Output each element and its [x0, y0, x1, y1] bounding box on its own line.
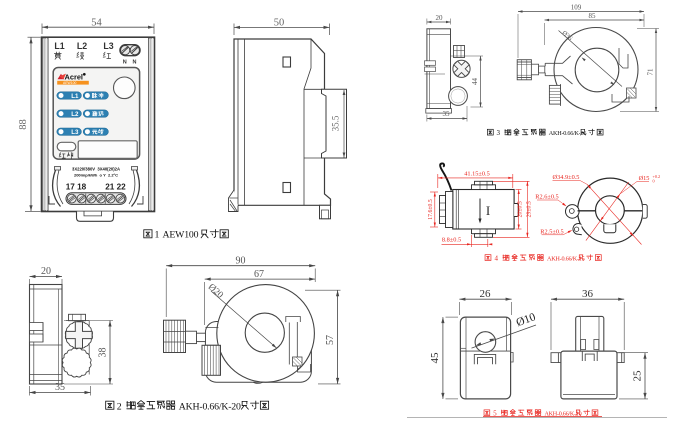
svg-text:50: 50 [274, 18, 285, 29]
svg-text:54: 54 [91, 18, 102, 29]
svg-text:36: 36 [582, 288, 594, 300]
svg-text:45: 45 [429, 352, 441, 364]
svg-text:AEW100: AEW100 [63, 81, 76, 85]
svg-text:25: 25 [632, 370, 644, 382]
svg-text:0: 0 [653, 179, 655, 184]
svg-text:17 18: 17 18 [66, 183, 87, 192]
svg-text:57: 57 [325, 335, 336, 345]
svg-text:90: 90 [236, 256, 246, 267]
svg-text:I: I [486, 203, 490, 218]
svg-text:4: 4 [494, 255, 498, 263]
svg-text:35: 35 [55, 382, 65, 393]
svg-text:88: 88 [18, 119, 29, 130]
svg-text:L2: L2 [71, 111, 79, 118]
svg-text:5: 5 [493, 411, 497, 418]
svg-text:R2.5±0.5: R2.5±0.5 [540, 228, 563, 235]
svg-text:85: 85 [589, 12, 597, 20]
svg-text:38: 38 [98, 348, 109, 358]
svg-text:8.8±0.5: 8.8±0.5 [442, 236, 461, 243]
svg-text:2: 2 [117, 402, 122, 413]
svg-text:71: 71 [647, 68, 655, 76]
svg-text:200imp/kWh o Y 2.2°C: 200imp/kWh o Y 2.2°C [74, 172, 118, 177]
svg-text:20: 20 [41, 266, 51, 277]
svg-text:L3: L3 [103, 41, 113, 51]
svg-text:R2.6±0.5: R2.6±0.5 [535, 194, 558, 201]
svg-text:N: N [123, 60, 127, 66]
svg-text:3X220/380V 3X40(20)2A: 3X220/380V 3X40(20)2A [72, 167, 120, 172]
svg-text:21 22: 21 22 [105, 183, 126, 192]
svg-text:44: 44 [471, 78, 479, 86]
svg-text:L3: L3 [71, 129, 79, 136]
svg-text:Ø34.9±0.5: Ø34.9±0.5 [553, 174, 580, 181]
svg-text:1: 1 [155, 230, 160, 241]
svg-text:17.6±0.5: 17.6±0.5 [428, 199, 434, 220]
svg-text:AKH-0.66/K-10: AKH-0.66/K-10 [545, 412, 582, 418]
svg-text:L2: L2 [77, 41, 87, 51]
svg-text:67: 67 [254, 269, 264, 280]
svg-text:41.15±0.5: 41.15±0.5 [464, 171, 490, 178]
svg-text:26: 26 [480, 288, 492, 300]
svg-text:20: 20 [436, 14, 444, 22]
svg-text:L1: L1 [71, 93, 79, 100]
svg-text:AEW100: AEW100 [163, 230, 199, 241]
svg-text:Acrel: Acrel [65, 72, 84, 81]
svg-text:3: 3 [496, 129, 500, 137]
svg-text:Ø15: Ø15 [639, 175, 650, 182]
svg-text:35: 35 [443, 110, 451, 118]
svg-text:Ø20: Ø20 [206, 282, 225, 301]
svg-text:N: N [133, 60, 137, 66]
svg-text:109: 109 [571, 4, 582, 12]
svg-text:Ø10: Ø10 [515, 311, 538, 329]
svg-text:35.5: 35.5 [331, 115, 341, 131]
svg-text:L1: L1 [54, 41, 64, 51]
svg-text:AKH-0.66/K-20: AKH-0.66/K-20 [179, 402, 241, 413]
